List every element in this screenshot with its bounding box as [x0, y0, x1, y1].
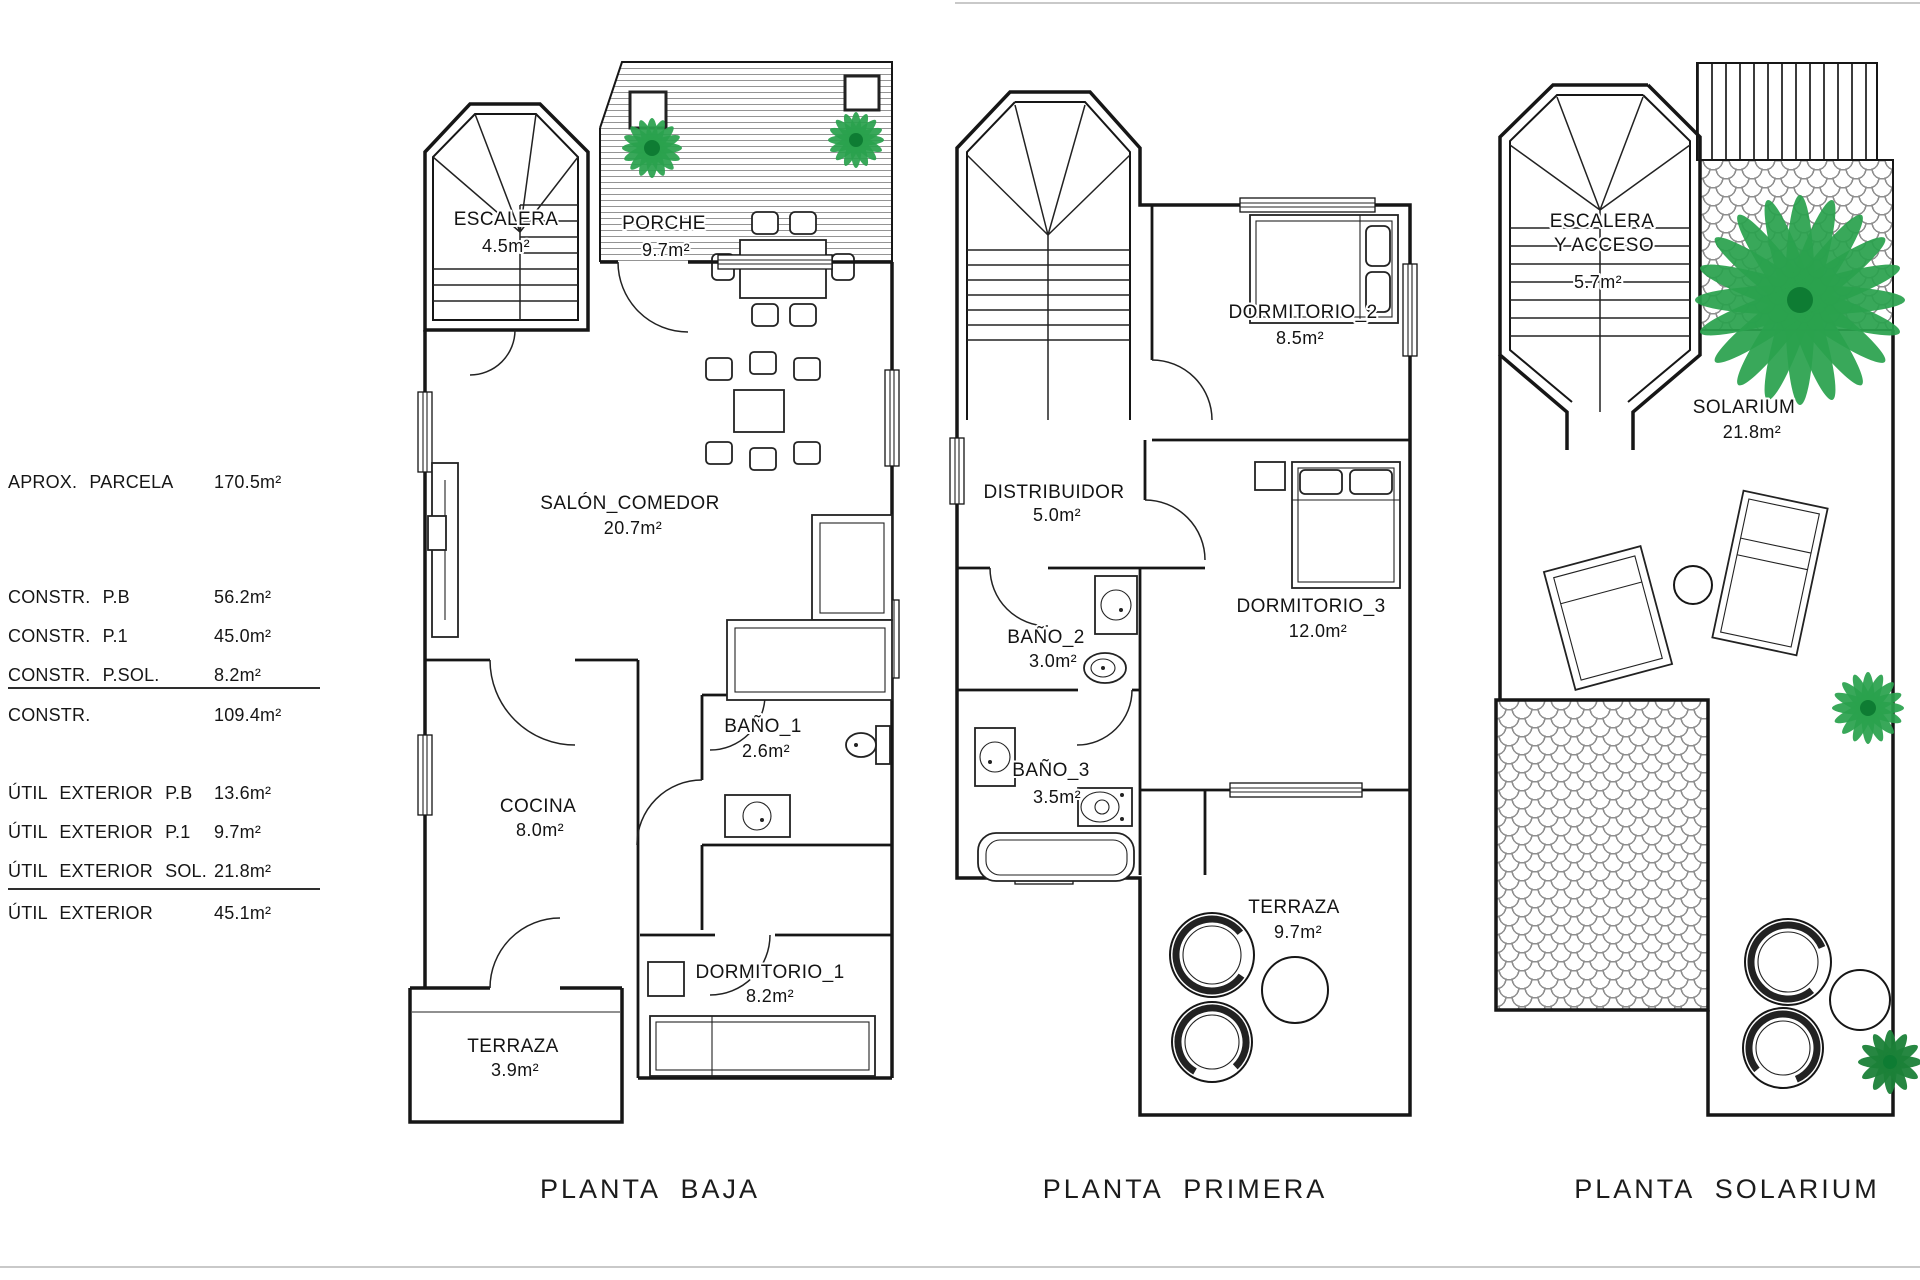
room-label-solarium: SOLARIUM	[1693, 397, 1795, 418]
room-area-dormitorio2: 8.5m²	[1276, 328, 1324, 348]
summary-row: CONSTR.109.4m²	[8, 703, 318, 727]
summary-row: ÚTIL EXTERIOR P.19.7m²	[8, 820, 318, 844]
room-area-salon: 20.7m²	[604, 518, 662, 538]
room-area-cocina: 8.0m²	[516, 820, 564, 840]
summary-label: CONSTR. P.SOL.	[8, 665, 214, 686]
room-area-bano2: 3.0m²	[1029, 651, 1077, 671]
room-area-bano3: 3.5m²	[1033, 787, 1081, 807]
title-planta-solarium: PLANTA SOLARIUM	[1517, 1174, 1920, 1205]
planta-primera-drawing: DORMITORIO_2 8.5m² DISTRIBUIDOR 5.0m² BA…	[940, 80, 1425, 1125]
room-area-escalera-acceso: 5.7m²	[1574, 272, 1622, 292]
floorplan-sheet: APROX. PARCELA170.5m² CONSTR. P.B56.2m² …	[0, 0, 1920, 1280]
corner-plant	[1858, 1030, 1920, 1094]
room-area-bano1: 2.6m²	[742, 741, 790, 761]
room-area-porche: 9.7m²	[642, 240, 690, 260]
summary-divider	[8, 888, 320, 890]
summary-label: APROX. PARCELA	[8, 472, 214, 493]
terraza-baja	[410, 918, 622, 1122]
summary-row: CONSTR. P.B56.2m²	[8, 585, 318, 609]
room-area-dormitorio1: 8.2m²	[746, 986, 794, 1006]
room-label-dormitorio2: DORMITORIO_2	[1228, 302, 1377, 323]
room-area-escalera: 4.5m²	[482, 236, 530, 256]
sun-lounger	[1544, 546, 1672, 690]
room-label-escalera-acceso-line2: Y ACCESO	[1554, 235, 1654, 256]
summary-value: 13.6m²	[214, 783, 318, 804]
room-area-dormitorio3: 12.0m²	[1289, 621, 1347, 641]
summary-divider	[8, 687, 320, 689]
sheet-top-border-line	[955, 2, 1920, 4]
round-table	[1674, 566, 1712, 604]
summary-label: ÚTIL EXTERIOR SOL.	[8, 861, 214, 882]
room-label-escalera-acceso-line1: ESCALERA	[1550, 211, 1655, 232]
room-label-bano3: BAÑO_3	[1012, 759, 1089, 781]
room-label-dormitorio1: DORMITORIO_1	[695, 962, 844, 983]
summary-label: CONSTR.	[8, 705, 214, 726]
tv-unit	[428, 463, 458, 637]
spa-circle	[1166, 996, 1259, 1089]
summary-row: ÚTIL EXTERIOR45.1m²	[8, 901, 318, 925]
sheet-bottom-border-line	[0, 1266, 1920, 1268]
room-label-bano2: BAÑO_2	[1007, 626, 1084, 648]
round-table	[1262, 957, 1328, 1023]
summary-label: ÚTIL EXTERIOR	[8, 903, 214, 924]
room-label-terraza-primera: TERRAZA	[1248, 897, 1339, 918]
summary-label: CONSTR. P.B	[8, 587, 214, 608]
room-label-cocina: COCINA	[500, 796, 576, 817]
summary-row: ÚTIL EXTERIOR SOL.21.8m²	[8, 859, 318, 883]
room-area-solarium: 21.8m²	[1723, 422, 1781, 442]
summary-value: 109.4m²	[214, 705, 318, 726]
spa-circle	[1162, 905, 1262, 1005]
summary-label: ÚTIL EXTERIOR P.1	[8, 822, 214, 843]
room-label-porche: PORCHE	[622, 213, 706, 234]
summary-value: 45.0m²	[214, 626, 318, 647]
sofa	[727, 515, 892, 700]
title-planta-baja: PLANTA BAJA	[440, 1174, 860, 1205]
room-label-salon: SALÓN_COMEDOR	[540, 492, 719, 514]
title-planta-primera: PLANTA PRIMERA	[975, 1174, 1395, 1205]
palm-plant-large	[1695, 195, 1905, 405]
summary-label: ÚTIL EXTERIOR P.B	[8, 783, 214, 804]
room-label-bano1: BAÑO_1	[724, 715, 801, 737]
bed	[1255, 462, 1400, 588]
summary-row: CONSTR. P.SOL.8.2m²	[8, 663, 318, 687]
summary-row: CONSTR. P.145.0m²	[8, 624, 318, 648]
planta-solarium-drawing: ESCALERA Y ACCESO 5.7m² SOLARIUM 21.8m²	[1490, 55, 1908, 1125]
stair-tower	[1500, 85, 1700, 450]
plant	[622, 118, 682, 178]
round-table	[1830, 970, 1890, 1030]
room-area-terraza-baja: 3.9m²	[491, 1060, 539, 1080]
room-area-terraza-primera: 9.7m²	[1274, 922, 1322, 942]
summary-value: 21.8m²	[214, 861, 318, 882]
summary-value: 45.1m²	[214, 903, 318, 924]
bathroom2-fixtures	[1084, 576, 1137, 683]
spa-circle	[1736, 910, 1840, 1014]
summary-label: CONSTR. P.1	[8, 626, 214, 647]
planta-baja-drawing: ESCALERA 4.5m² PORCHE 9.7m² SALÓN_COMEDO…	[405, 40, 905, 1132]
room-area-distribuidor: 5.0m²	[1033, 505, 1081, 525]
summary-value: 170.5m²	[214, 472, 318, 493]
room-label-escalera: ESCALERA	[454, 209, 559, 230]
stairs	[967, 102, 1130, 420]
summary-value: 9.7m²	[214, 822, 318, 843]
summary-row: APROX. PARCELA170.5m²	[8, 470, 318, 494]
room-label-terraza-baja: TERRAZA	[467, 1036, 558, 1057]
spa-circle	[1735, 1000, 1831, 1096]
room-label-dormitorio3: DORMITORIO_3	[1236, 596, 1385, 617]
plant	[828, 112, 884, 168]
summary-row: ÚTIL EXTERIOR P.B13.6m²	[8, 781, 318, 805]
dining-set-salon	[706, 352, 820, 470]
room-label-distribuidor: DISTRIBUIDOR	[984, 482, 1125, 503]
summary-value: 8.2m²	[214, 665, 318, 686]
area-summary-table: APROX. PARCELA170.5m² CONSTR. P.B56.2m² …	[8, 468, 318, 925]
sun-lounger	[1712, 491, 1827, 656]
summary-value: 56.2m²	[214, 587, 318, 608]
palm-plant-small	[1832, 672, 1904, 744]
